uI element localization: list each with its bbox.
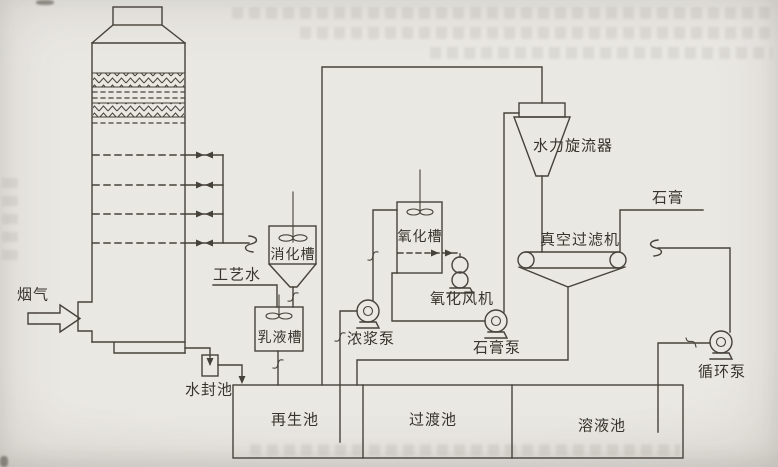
fgd-process-flow-diagram: 烟气 水封池 工艺水 消化槽 乳液槽 浓浆泵 氧化槽 氧化风机 石膏泵 水力旋流… [0, 0, 778, 467]
demister-packing-layers [93, 73, 184, 123]
gypsum-product-label: 石膏 [652, 187, 684, 208]
oxidation-tank [397, 170, 460, 273]
piping-linework [0, 0, 778, 467]
gypsum-pump-label: 石膏泵 [473, 337, 521, 358]
slurry-pump-label: 浓浆泵 [347, 328, 395, 349]
flue-gas-arrow [28, 305, 80, 332]
gypsum-pump-discharge [504, 113, 519, 312]
digestion-tank-label: 消化槽 [271, 244, 316, 264]
water-seal-pool-label: 水封池 [185, 379, 233, 400]
spray-flow-arrows [196, 152, 213, 247]
vacuum-filter-label: 真空过滤机 [540, 229, 620, 250]
hydrocyclone-label: 水力旋流器 [533, 135, 613, 156]
circulation-pump-discharge [658, 248, 730, 332]
process-water-line [213, 285, 277, 307]
process-water-label: 工艺水 [213, 264, 261, 285]
absorber-tower [78, 7, 256, 353]
circulation-pump [651, 240, 732, 432]
flue-gas-label: 烟气 [17, 284, 49, 305]
circulation-pump-label: 循环泵 [698, 361, 746, 382]
oxidation-tank-label: 氧化槽 [398, 226, 443, 246]
transition-pool-label: 过渡池 [409, 409, 457, 430]
pipe-break-symbol [246, 236, 257, 252]
circulation-pump-suction [658, 343, 710, 432]
regeneration-pool-label: 再生池 [271, 409, 319, 430]
slurry-pump-discharge [373, 210, 397, 300]
emulsion-tank-label: 乳液槽 [258, 327, 303, 347]
oxidation-fan-label: 氧化风机 [430, 288, 494, 309]
gypsum-discharge-line [620, 210, 703, 252]
spray-levels [93, 152, 256, 253]
spray-riser [223, 155, 249, 243]
tower-stack-outlet [113, 7, 162, 25]
tower-shoulder [92, 25, 185, 43]
slurry-pump [335, 210, 397, 442]
solution-pool-label: 溶液池 [578, 415, 626, 436]
